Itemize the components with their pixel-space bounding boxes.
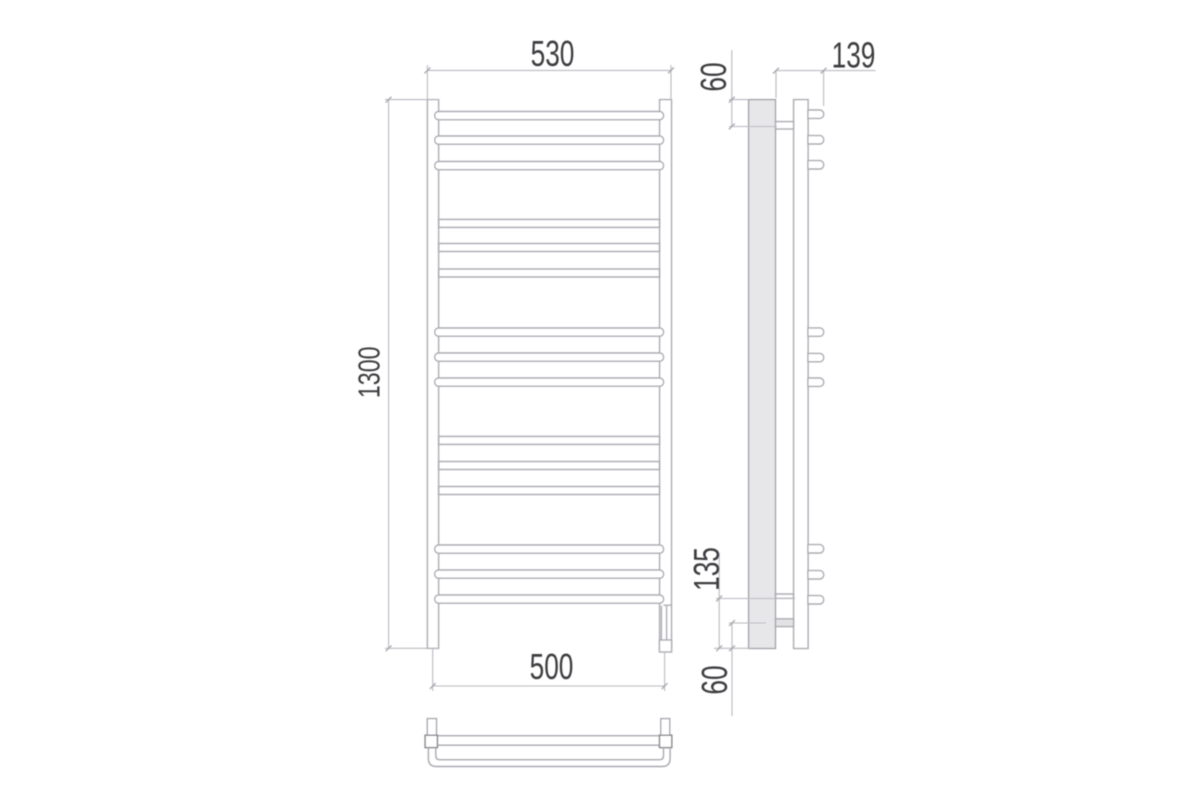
svg-text:500: 500 [530,646,574,687]
svg-text:135: 135 [686,547,727,591]
svg-text:530: 530 [531,33,575,74]
svg-text:139: 139 [832,34,876,75]
svg-text:60: 60 [693,62,734,91]
svg-text:60: 60 [694,665,735,694]
svg-text:1300: 1300 [351,346,386,398]
